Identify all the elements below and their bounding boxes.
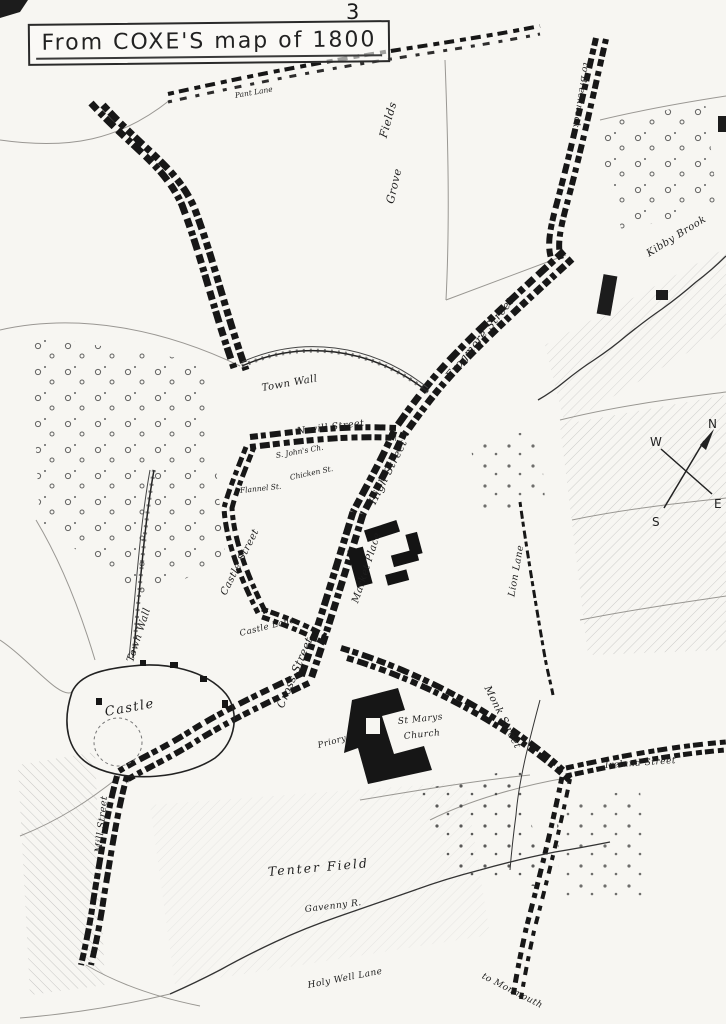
title-box: From COXE'S map of 1800: [28, 20, 390, 66]
compass-north-label: N: [708, 417, 717, 431]
compass-east-label: E: [714, 497, 722, 511]
compass-south-label: S: [652, 515, 660, 529]
map-page: N W S E 3 From COXE'S map of 1800 Fields…: [0, 0, 726, 1024]
compass-west-label: W: [650, 435, 662, 449]
map-title: From COXE'S map of 1800: [35, 27, 382, 60]
